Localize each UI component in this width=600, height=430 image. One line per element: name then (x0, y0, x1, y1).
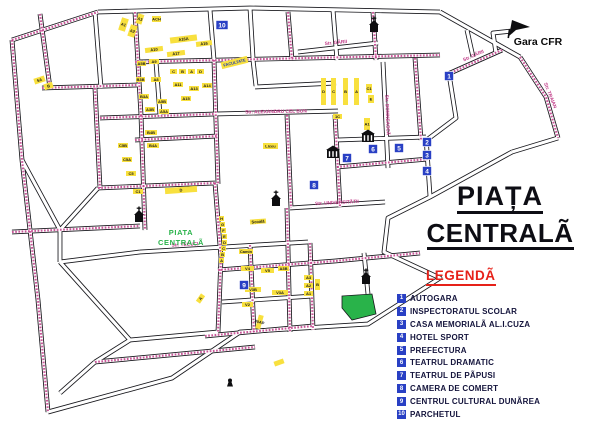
building: Camin (239, 249, 253, 254)
map-title-line2: CENTRALÃ (427, 220, 574, 250)
svg-text:V3B: V3B (249, 287, 257, 292)
svg-text:D: D (322, 89, 325, 94)
svg-text:Liceu: Liceu (265, 144, 276, 149)
building: V4 (241, 266, 254, 271)
legend-heading: LEGENDÃ (426, 268, 496, 286)
legend-list: 1AUTOGARA2INSPECTORATUL SCOLAR3CASA MEMO… (397, 292, 540, 421)
svg-text:D: D (223, 240, 226, 245)
svg-text:A3: A3 (306, 275, 312, 280)
building: B3B (136, 77, 145, 82)
church-icon (369, 17, 379, 33)
map-page: Str. TRAIANStr. GÃRIIStr. GÃRIIStr. ALEX… (0, 0, 600, 430)
svg-text:V5: V5 (265, 268, 271, 273)
building: A1 (118, 17, 129, 32)
svg-text:C5B: C5B (119, 143, 127, 148)
building: A5B (157, 99, 167, 104)
legend-item-number: 8 (397, 384, 406, 393)
svg-text:C1: C1 (135, 189, 141, 194)
legend-item-number: 3 (397, 320, 406, 329)
svg-text:V3A: V3A (276, 290, 284, 295)
svg-text:ACH: ACH (152, 17, 161, 22)
svg-text:3: 3 (425, 152, 429, 159)
legend-item-label: INSPECTORATUL SCOLAR (410, 307, 517, 316)
map-title: PIAȚA CENTRALÃ (414, 183, 586, 250)
svg-text:C5: C5 (128, 171, 134, 176)
svg-text:8: 8 (312, 182, 316, 189)
building: 5A (33, 75, 45, 84)
building: E (368, 95, 374, 103)
marker-8: 8 (310, 181, 319, 190)
svg-text:CENTRALÃ: CENTRALÃ (158, 238, 204, 247)
svg-text:V2: V2 (245, 302, 251, 307)
gara-cfr-label: Gara CFR (514, 36, 563, 48)
svg-text:A17: A17 (172, 50, 181, 56)
svg-text:A: A (190, 69, 193, 74)
building: A15 (181, 96, 191, 101)
legend-item: 5PREFECTURA (397, 344, 540, 357)
building: B (315, 279, 320, 290)
svg-text:E: E (370, 97, 373, 102)
legend-item: 1AUTOGARA (397, 292, 540, 305)
building: C (331, 78, 336, 105)
building: A16A (170, 34, 198, 43)
building: A (219, 258, 224, 263)
svg-text:B3A: B3A (140, 94, 148, 99)
marker-1: 1 (445, 72, 454, 81)
svg-text:A: A (355, 89, 358, 94)
legend-item-number: 5 (397, 346, 406, 355)
svg-text:A5B: A5B (158, 99, 166, 104)
svg-text:G: G (221, 222, 224, 227)
svg-text:C: C (222, 246, 225, 251)
legend-item-label: PARCHETUL (410, 410, 461, 419)
theater-icon (361, 130, 375, 143)
legend-item-label: TEATRUL DE PÃPUSI (410, 371, 495, 380)
svg-text:PIATA: PIATA (169, 228, 193, 237)
map-title-line1: PIAȚA (457, 183, 543, 214)
marker-2: 2 (423, 138, 432, 147)
building: F (221, 228, 226, 233)
svg-text:A3B: A3B (279, 266, 287, 271)
building: D (197, 69, 204, 74)
svg-text:C: C (172, 69, 175, 74)
legend-item-number: 4 (397, 333, 406, 342)
building: D (321, 78, 326, 105)
building: C5A (122, 157, 132, 162)
building: A3 (304, 275, 313, 280)
building: V2 (242, 302, 253, 307)
marker-10: 10 (216, 21, 228, 30)
building: B (179, 69, 186, 74)
legend-item-label: PREFECTURA (410, 346, 467, 355)
svg-text:B4B: B4B (147, 130, 155, 135)
building: E (222, 234, 227, 239)
building: A11 (173, 82, 183, 87)
building: A10 (145, 46, 163, 53)
building: A9 (149, 59, 159, 64)
svg-text:A11: A11 (174, 82, 182, 87)
legend-item: 9CENTRUL CULTURAL DUNÃREA (397, 395, 540, 408)
svg-text:Str. ALEXANDRU CEL BUN: Str. ALEXANDRU CEL BUN (245, 108, 307, 115)
church-icon (361, 269, 371, 285)
marker-3: 3 (423, 151, 432, 160)
svg-text:A1: A1 (364, 122, 370, 127)
building: V5 (261, 268, 274, 273)
legend-item: 6TEATRUL DRAMATIC (397, 356, 540, 369)
building: C (221, 246, 226, 251)
building: B (343, 78, 348, 105)
building: A5B (137, 61, 146, 66)
building: A3B (145, 107, 155, 112)
marker-7: 7 (343, 154, 352, 163)
building: Scoalã (250, 218, 266, 224)
legend-item-label: CASA MEMORIALÃ AL.I.CUZA (410, 320, 530, 329)
legend-item: 8CAMERA DE COMERT (397, 382, 540, 395)
building: A5A (159, 109, 169, 114)
svg-text:A5A: A5A (160, 109, 168, 114)
svg-text:1: 1 (447, 73, 451, 80)
marker-6: 6 (369, 145, 378, 154)
legend-item-label: CENTRUL CULTURAL DUNÃREA (410, 397, 540, 406)
building: H (219, 216, 224, 221)
building: V3A (272, 290, 288, 295)
buildings-layer: A1A2A3ACH5ABA16AA16A10A17A5BA9CBADB3BA8A… (33, 13, 374, 366)
svg-text:A16: A16 (200, 40, 209, 46)
building: B4B (145, 130, 157, 135)
svg-text:B3B: B3B (136, 77, 144, 82)
church-icon (271, 191, 281, 207)
svg-text:C5A: C5A (123, 157, 131, 162)
svg-text:7: 7 (345, 155, 349, 162)
svg-text:C1: C1 (366, 86, 372, 91)
building (273, 358, 284, 366)
svg-text:A9: A9 (151, 59, 157, 64)
svg-text:A13: A13 (190, 86, 198, 91)
svg-text:D: D (179, 187, 182, 192)
legend-item: 2INSPECTORATUL SCOLAR (397, 305, 540, 318)
legend-item-number: 2 (397, 307, 406, 316)
svg-text:1C: 1C (335, 114, 340, 119)
svg-text:B: B (316, 282, 319, 287)
legend-item-label: HOTEL SPORT (410, 333, 469, 342)
building: B4A (147, 143, 159, 148)
building: G (220, 222, 225, 227)
building: A13 (189, 86, 199, 91)
building: C1 (366, 84, 372, 93)
legend-item-number: 1 (397, 294, 406, 303)
building: C (170, 69, 177, 74)
svg-text:A8: A8 (153, 77, 159, 82)
svg-text:B: B (181, 69, 184, 74)
legend-item-label: TEATRUL DRAMATIC (410, 358, 494, 367)
building: C5 (126, 171, 136, 176)
marker-5: 5 (395, 144, 404, 153)
legend-item-label: AUTOGARA (410, 294, 458, 303)
monument-icon (227, 379, 233, 387)
legend-item-number: 6 (397, 358, 406, 367)
svg-text:6: 6 (371, 146, 375, 153)
building: 1C (333, 114, 342, 119)
svg-text:Str. DOMNEASCÃ: Str. DOMNEASCÃ (383, 95, 391, 136)
building: C5B (118, 143, 128, 148)
svg-text:10: 10 (218, 22, 226, 29)
park-area (342, 294, 376, 320)
building: ACH (152, 16, 161, 22)
legend-item-number: 7 (397, 371, 406, 380)
svg-text:B4A: B4A (149, 143, 157, 148)
building: A1 (364, 118, 370, 130)
building: Liceu (263, 143, 278, 149)
legend-item: 4HOTEL SPORT (397, 331, 540, 344)
legend-item: 3CASA MEMORIALÃ AL.I.CUZA (397, 318, 540, 331)
legend-item-number: 9 (397, 397, 406, 406)
svg-text:A14: A14 (203, 83, 211, 88)
svg-text:5: 5 (397, 145, 401, 152)
svg-text:A: A (220, 258, 223, 263)
building: A16 (196, 40, 212, 47)
building: A2 (304, 283, 313, 288)
legend-item: 7TEATRUL DE PÃPUSI (397, 369, 540, 382)
svg-text:A2: A2 (306, 283, 312, 288)
building: A (354, 78, 359, 105)
building: A14 (202, 83, 212, 88)
svg-text:4: 4 (425, 168, 429, 175)
building: B (220, 252, 225, 257)
building: A8 (151, 77, 161, 82)
svg-text:V4: V4 (245, 266, 251, 271)
legend-item: 10PARCHETUL (397, 408, 540, 421)
svg-text:Scoalã: Scoalã (251, 219, 265, 225)
marker-9: 9 (240, 281, 249, 290)
svg-text:H: H (220, 216, 223, 221)
svg-text:B: B (221, 252, 224, 257)
marker-4: 4 (423, 167, 432, 176)
piata-centrala-label: PIATACENTRALÃ (158, 228, 204, 247)
svg-text:A1: A1 (306, 291, 312, 296)
building: C1 (133, 189, 143, 194)
building: A1 (304, 291, 313, 296)
legend-item-label: CAMERA DE COMERT (410, 384, 498, 393)
svg-text:C: C (332, 89, 335, 94)
svg-text:A15: A15 (182, 96, 190, 101)
svg-text:D: D (199, 69, 202, 74)
building: A3B (278, 266, 289, 271)
svg-text:A10: A10 (150, 46, 159, 52)
building: A (188, 69, 195, 74)
svg-text:B: B (344, 89, 347, 94)
building: A (196, 293, 205, 303)
legend-item-number: 10 (397, 410, 406, 419)
svg-text:2: 2 (425, 139, 429, 146)
svg-text:Camin: Camin (240, 249, 253, 254)
building: A17 (167, 50, 185, 57)
building: D (222, 240, 227, 245)
svg-text:A3B: A3B (146, 107, 154, 112)
svg-text:A5B: A5B (137, 61, 145, 66)
building: B3A (139, 94, 149, 99)
svg-text:9: 9 (242, 282, 246, 289)
svg-text:E: E (223, 234, 226, 239)
